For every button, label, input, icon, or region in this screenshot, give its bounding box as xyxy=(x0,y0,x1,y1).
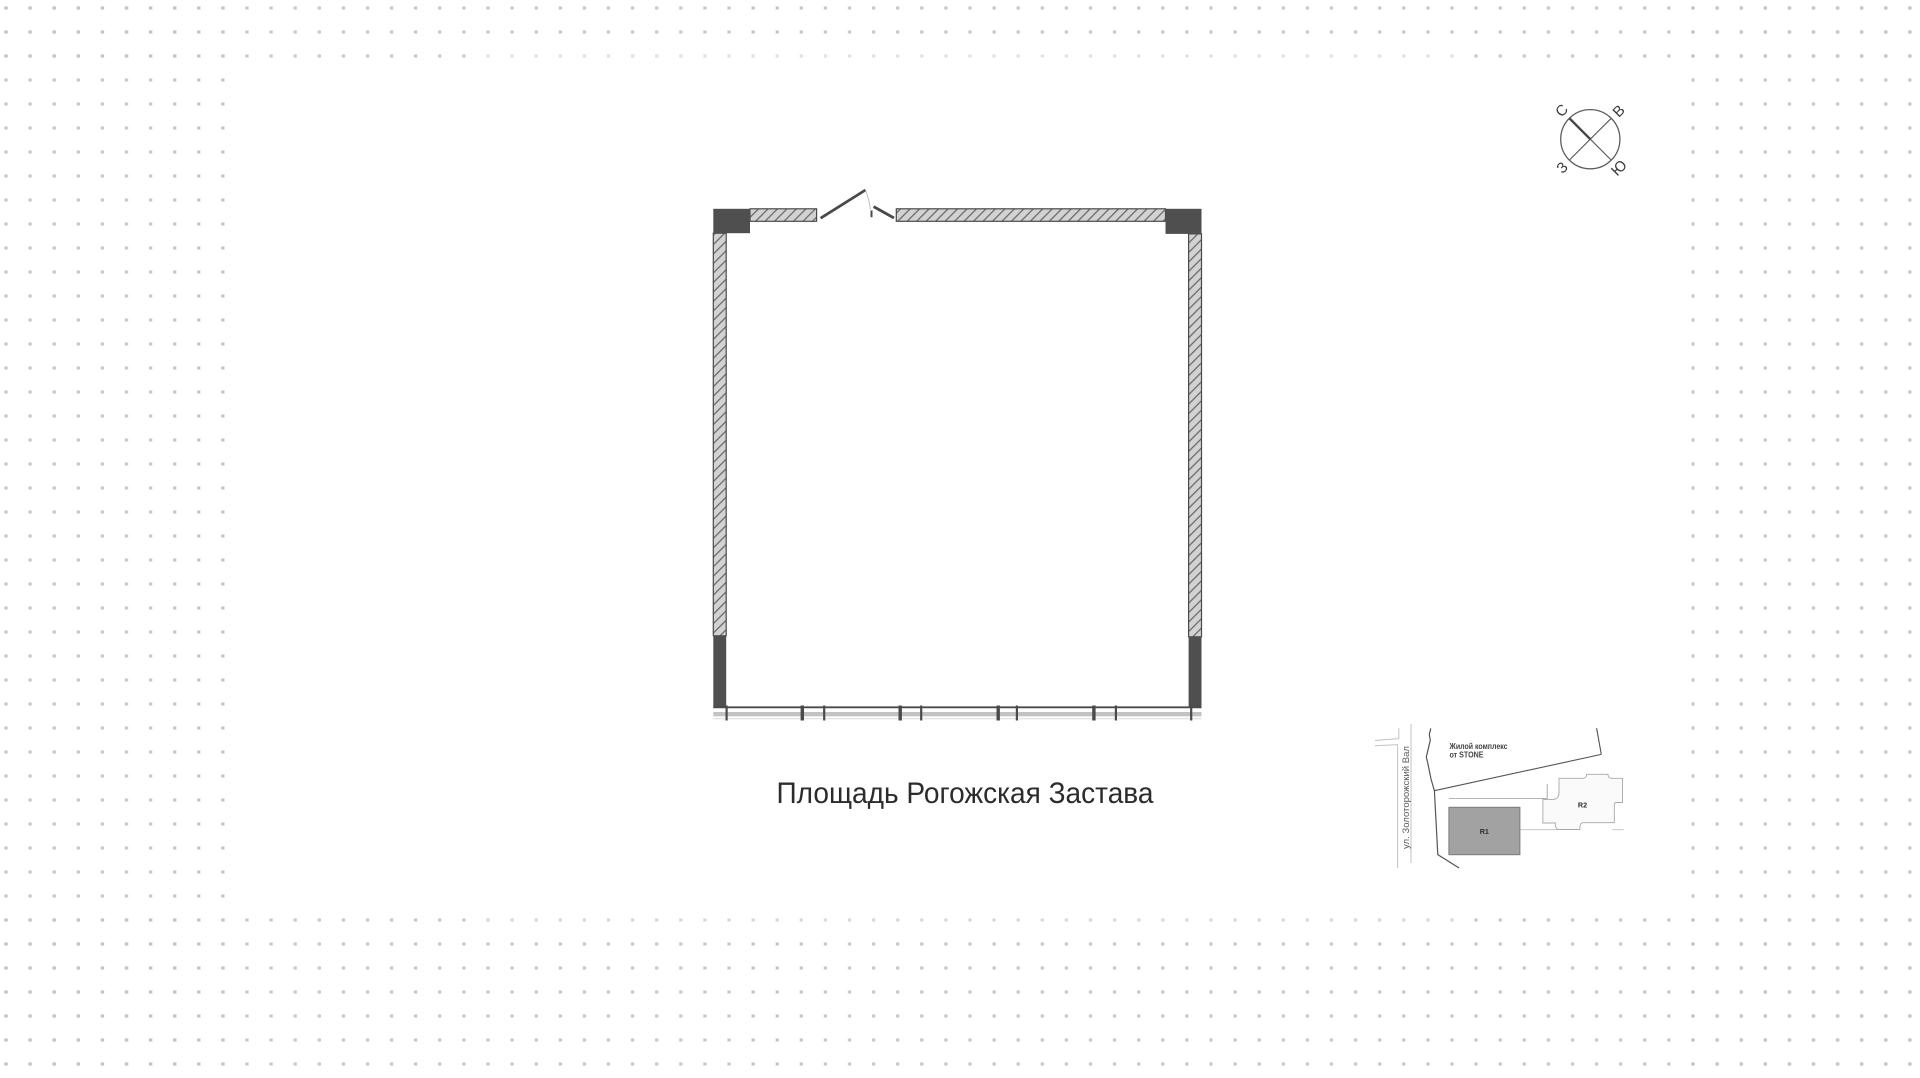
svg-text:ул. Золоторожский Вал: ул. Золоторожский Вал xyxy=(1401,746,1412,849)
svg-text:от STONE: от STONE xyxy=(1450,750,1484,759)
svg-text:Площадь Рогожская Застава: Площадь Рогожская Застава xyxy=(777,777,1155,810)
svg-text:R1: R1 xyxy=(1480,827,1489,836)
svg-text:R2: R2 xyxy=(1578,801,1587,810)
